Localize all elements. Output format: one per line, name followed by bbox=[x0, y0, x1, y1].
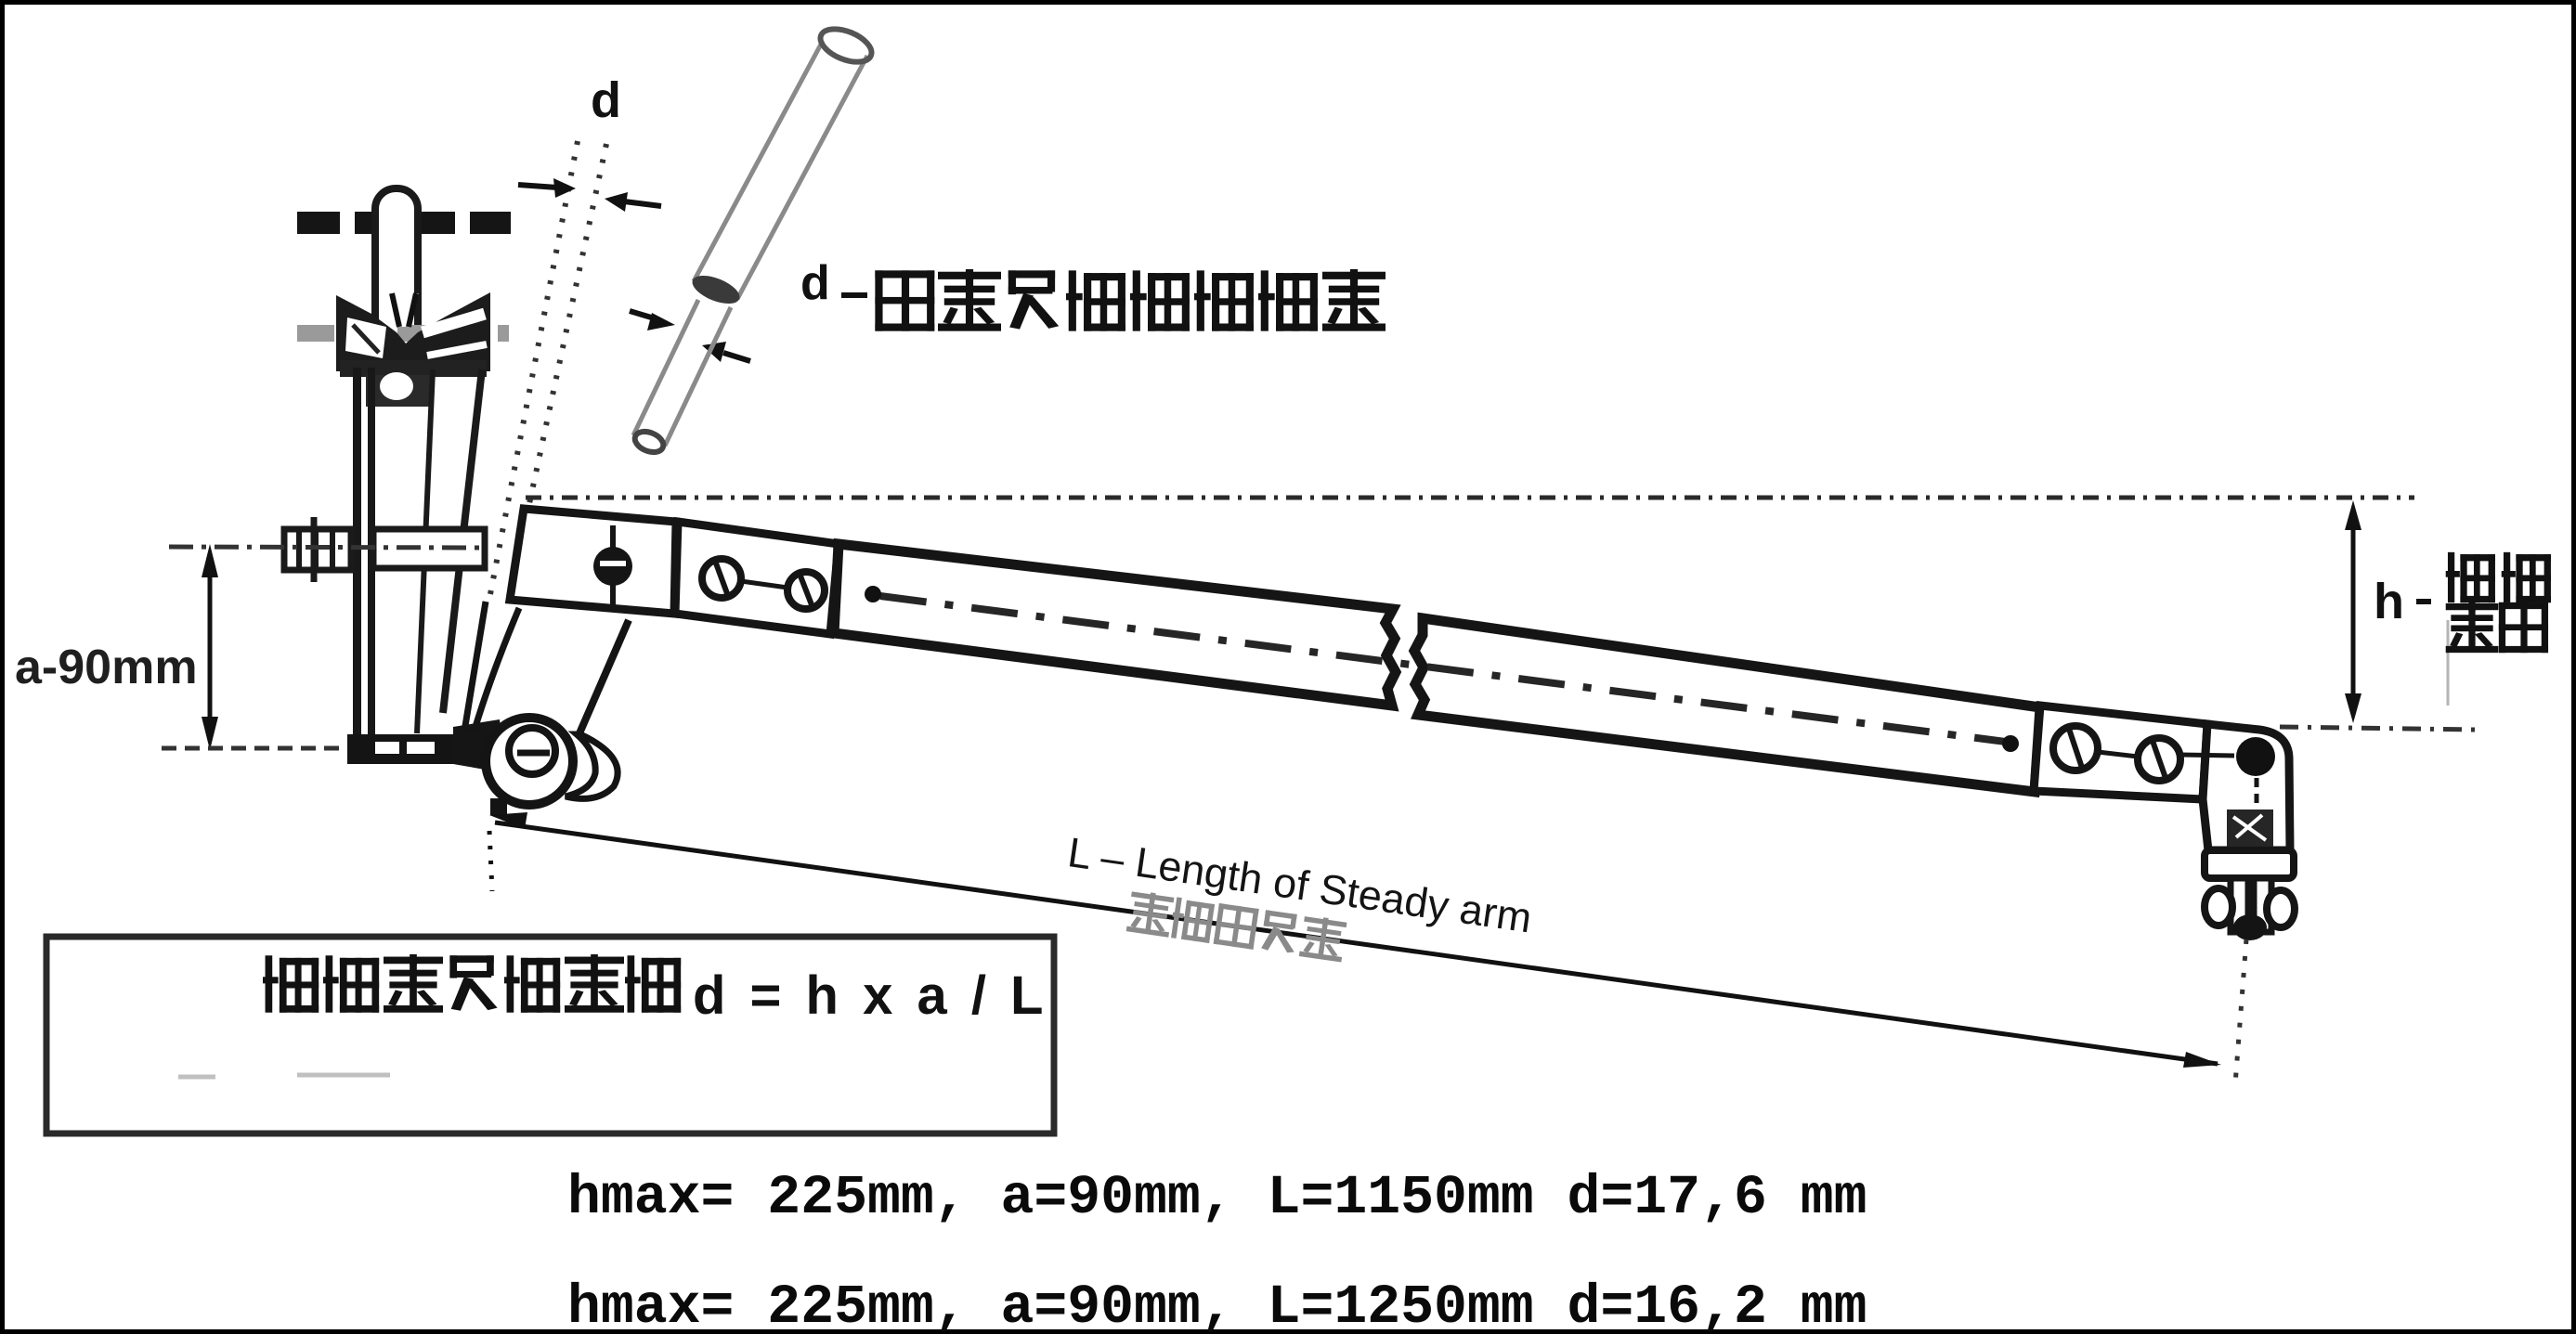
svg-text:hmax= 225mm, a=90mm, L=1150mm: hmax= 225mm, a=90mm, L=1150mm d=17,6 mm bbox=[567, 1166, 1867, 1229]
svg-text:d = h x a / L: d = h x a / L bbox=[693, 965, 1047, 1026]
svg-text:a-90mm: a-90mm bbox=[15, 641, 198, 694]
svg-text:d: d bbox=[591, 72, 621, 128]
svg-text:d: d bbox=[800, 256, 830, 310]
svg-text:hmax= 225mm, a=90mm, L=1250mm: hmax= 225mm, a=90mm, L=1250mm d=16,2 mm bbox=[567, 1276, 1867, 1334]
svg-text:h: h bbox=[2374, 574, 2404, 629]
